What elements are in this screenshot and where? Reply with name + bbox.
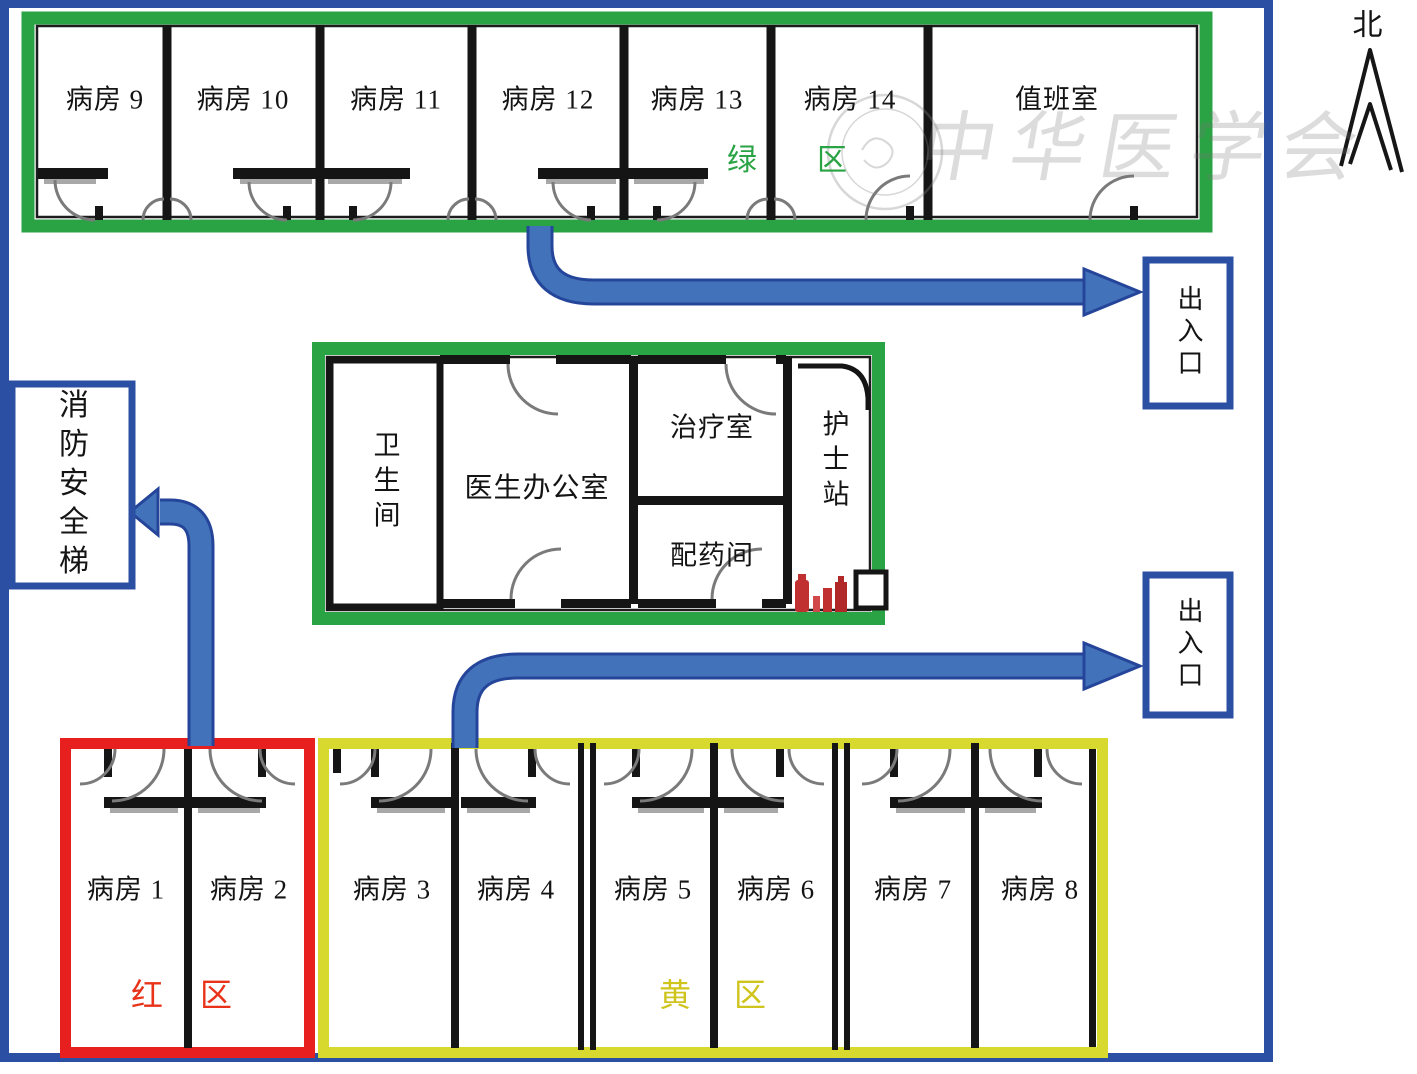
room-label-ward6: 病房 6 bbox=[737, 877, 815, 904]
room-label-ward11: 病房 11 bbox=[350, 87, 442, 114]
room-label-ward5: 病房 5 bbox=[614, 877, 692, 904]
yellow-zone-label: 黄区 bbox=[659, 979, 809, 1011]
red-zone-label: 红区 bbox=[131, 979, 269, 1011]
room-label-ward14: 病房 14 bbox=[804, 87, 897, 114]
room-label-duty-room: 值班室 bbox=[1015, 87, 1099, 114]
north-arrow-icon bbox=[1341, 50, 1402, 172]
exit-top-label: 出入口 bbox=[1175, 285, 1201, 381]
room-label-ward3: 病房 3 bbox=[353, 877, 431, 904]
floor-plan-figure: 病房 9 病房 10 病房 11 病房 12 病房 13 病房 14 值班室 绿… bbox=[0, 0, 1417, 1074]
room-label-ward9: 病房 9 bbox=[66, 87, 144, 114]
green-zone-label: 绿区 bbox=[727, 146, 907, 176]
room-label-ward2: 病房 2 bbox=[210, 877, 288, 904]
room-label-ward7: 病房 7 bbox=[874, 877, 952, 904]
room-label-ward8: 病房 8 bbox=[1001, 877, 1079, 904]
room-label-doctor-office: 医生办公室 bbox=[464, 475, 609, 503]
room-label-ward10: 病房 10 bbox=[197, 87, 290, 114]
room-label-ward13: 病房 13 bbox=[651, 87, 744, 114]
room-label-ward1: 病房 1 bbox=[87, 877, 165, 904]
north-label: 北 bbox=[1353, 11, 1384, 41]
room-label-nurse-station: 护士站 bbox=[820, 410, 847, 515]
room-label-ward4: 病房 4 bbox=[477, 877, 555, 904]
fire-stairs-label: 消防安全梯 bbox=[55, 389, 85, 584]
room-label-dispensing-room: 配药间 bbox=[670, 543, 754, 570]
green-zone-block bbox=[28, 18, 1206, 226]
exit-bottom-label: 出入口 bbox=[1175, 597, 1201, 693]
nurse-station-desk bbox=[856, 572, 886, 608]
room-label-ward12: 病房 12 bbox=[502, 87, 595, 114]
room-label-bathroom: 卫生间 bbox=[371, 431, 398, 536]
room-label-treatment-room: 治疗室 bbox=[670, 415, 754, 442]
